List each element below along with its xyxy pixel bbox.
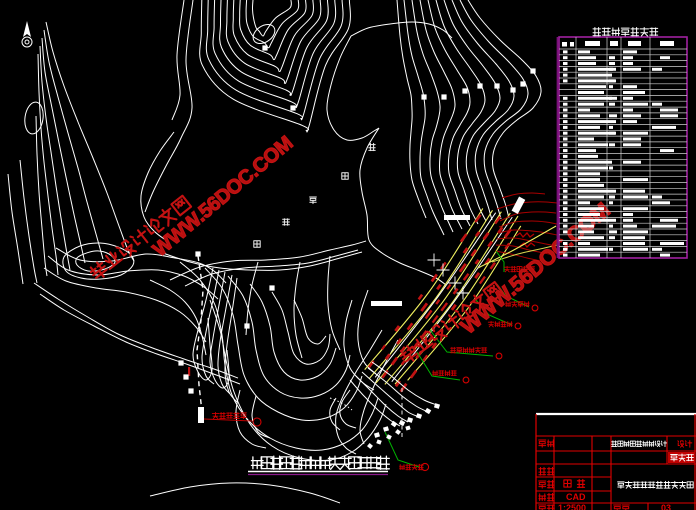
svg-text:03: 03 [661, 503, 671, 510]
svg-text:CAD: CAD [566, 492, 586, 502]
svg-text:1:2500: 1:2500 [558, 503, 586, 510]
